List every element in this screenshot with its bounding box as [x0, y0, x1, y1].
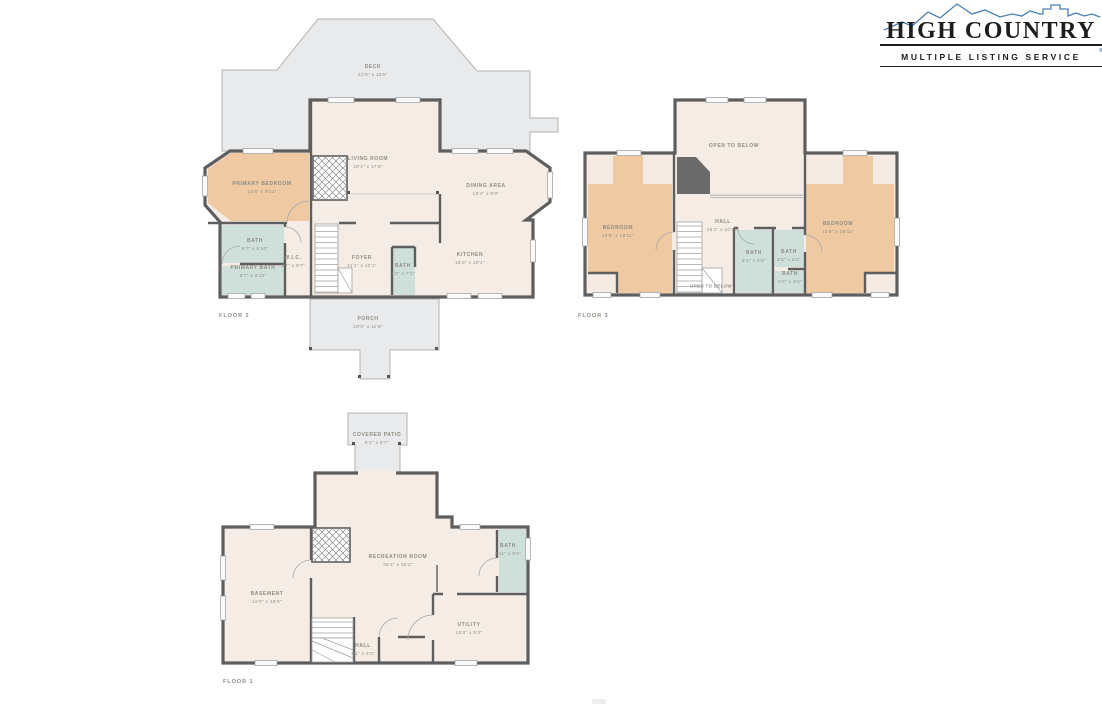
logo-subtitle-bar: MULTIPLE LISTING SERVICE ® [880, 44, 1102, 67]
floor1-label: FLOOR 1 [223, 679, 254, 685]
floor3-label: FLOOR 3 [578, 313, 609, 319]
fireplace-hatch [313, 156, 347, 200]
mls-logo: HIGH COUNTRY MULTIPLE LISTING SERVICE ® [880, 2, 1102, 58]
floor1-bath-fill [499, 529, 526, 592]
primary-bedroom-fill [208, 153, 309, 221]
foyer-bath-fill [392, 247, 415, 295]
bath3-fill [775, 271, 804, 293]
closet-right-fill [865, 273, 894, 293]
floorplan-drawing [0, 0, 1102, 712]
bath2-fill [775, 230, 804, 267]
closet-left-fill [588, 273, 617, 293]
logo-subtitle: MULTIPLE LISTING SERVICE [901, 52, 1081, 62]
floor1-fireplace-hatch [312, 528, 350, 562]
primary-bath-fill [222, 266, 284, 295]
page-mark [592, 699, 606, 704]
logo-title: HIGH COUNTRY [880, 18, 1102, 44]
bedroom-left-nook [613, 156, 643, 184]
floor2-label: FLOOR 2 [219, 313, 250, 319]
floor1-stairs [312, 618, 353, 662]
floor3-plan [582, 97, 899, 297]
bath-fill [222, 225, 284, 263]
floor2-plan [202, 19, 558, 379]
floor1-footprint [223, 473, 528, 663]
bedroom-right-nook [843, 156, 873, 184]
porch-shape [310, 299, 439, 379]
floorplan-page: DECK 43'9" x 16'5" PRIMARY BEDROOM 14'6"… [0, 0, 1102, 712]
patio-opening [358, 470, 396, 475]
floor1-plan [220, 413, 530, 666]
bath1-fill [736, 230, 772, 293]
